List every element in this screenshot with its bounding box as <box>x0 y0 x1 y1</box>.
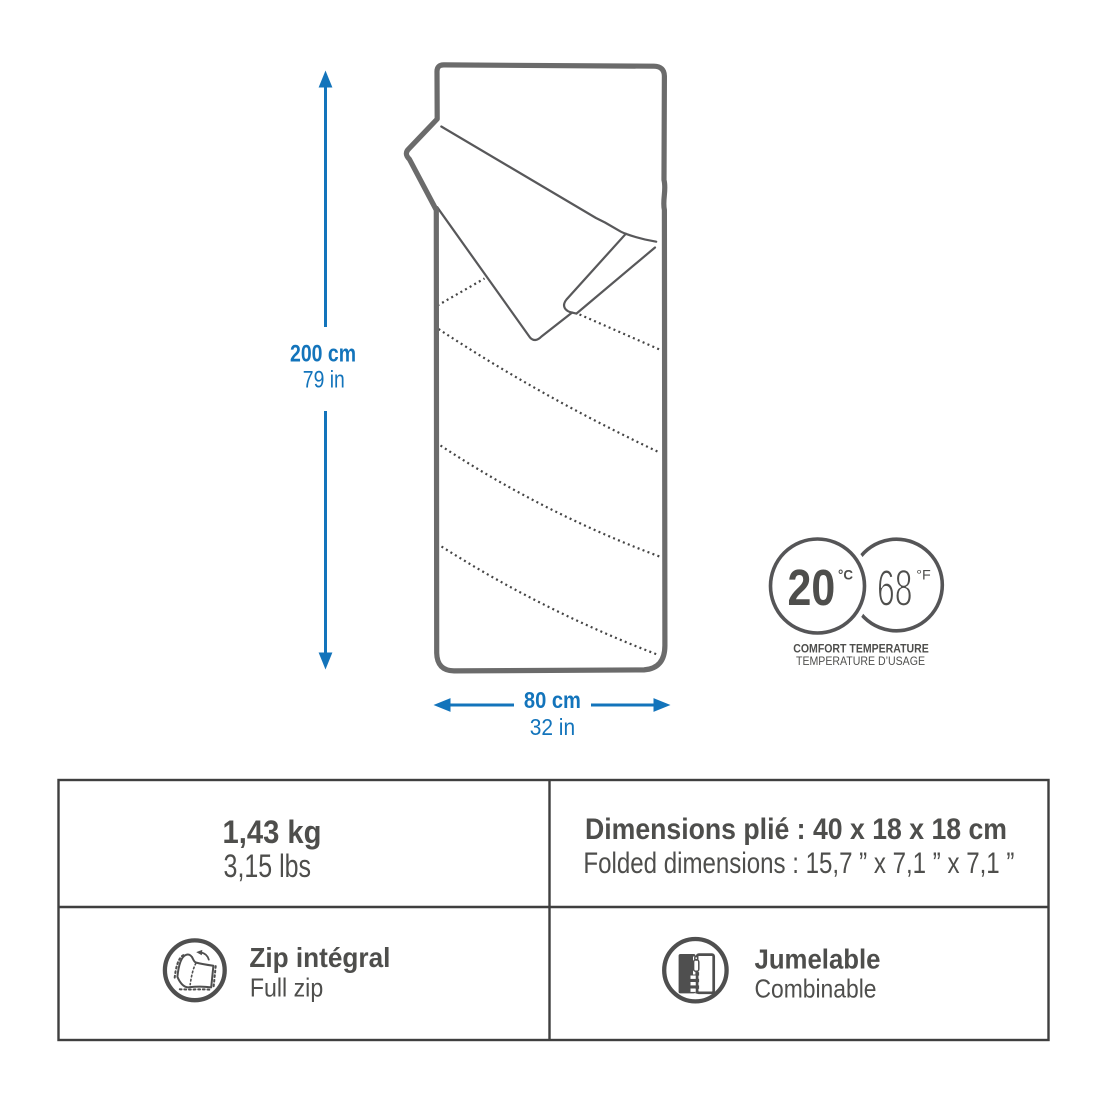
svg-text:Combinable: Combinable <box>755 974 877 1004</box>
svg-text:Jumelable: Jumelable <box>755 943 881 974</box>
svg-text:32 in: 32 in <box>530 714 575 740</box>
svg-text:TEMPERATURE D’USAGE: TEMPERATURE D’USAGE <box>796 654 925 668</box>
svg-text:3,15 lbs: 3,15 lbs <box>224 848 312 884</box>
svg-text:Zip intégral: Zip intégral <box>249 942 390 973</box>
svg-text:1,43 kg: 1,43 kg <box>223 814 322 850</box>
svg-text:Folded dimensions : 15,7 ” x 7: Folded dimensions : 15,7 ” x 7,1 ” x 7,1… <box>583 847 1014 880</box>
svg-text:°F: °F <box>916 568 931 583</box>
svg-text:°C: °C <box>838 568 853 583</box>
svg-text:200 cm: 200 cm <box>290 341 356 368</box>
svg-text:20: 20 <box>788 559 836 616</box>
svg-text:68: 68 <box>877 560 913 617</box>
svg-text:80 cm: 80 cm <box>524 687 581 713</box>
svg-text:79 in: 79 in <box>303 367 345 394</box>
svg-text:Full zip: Full zip <box>250 972 323 1002</box>
svg-text:Dimensions plié : 40 x 18 x 18: Dimensions plié : 40 x 18 x 18 cm <box>585 813 1007 846</box>
